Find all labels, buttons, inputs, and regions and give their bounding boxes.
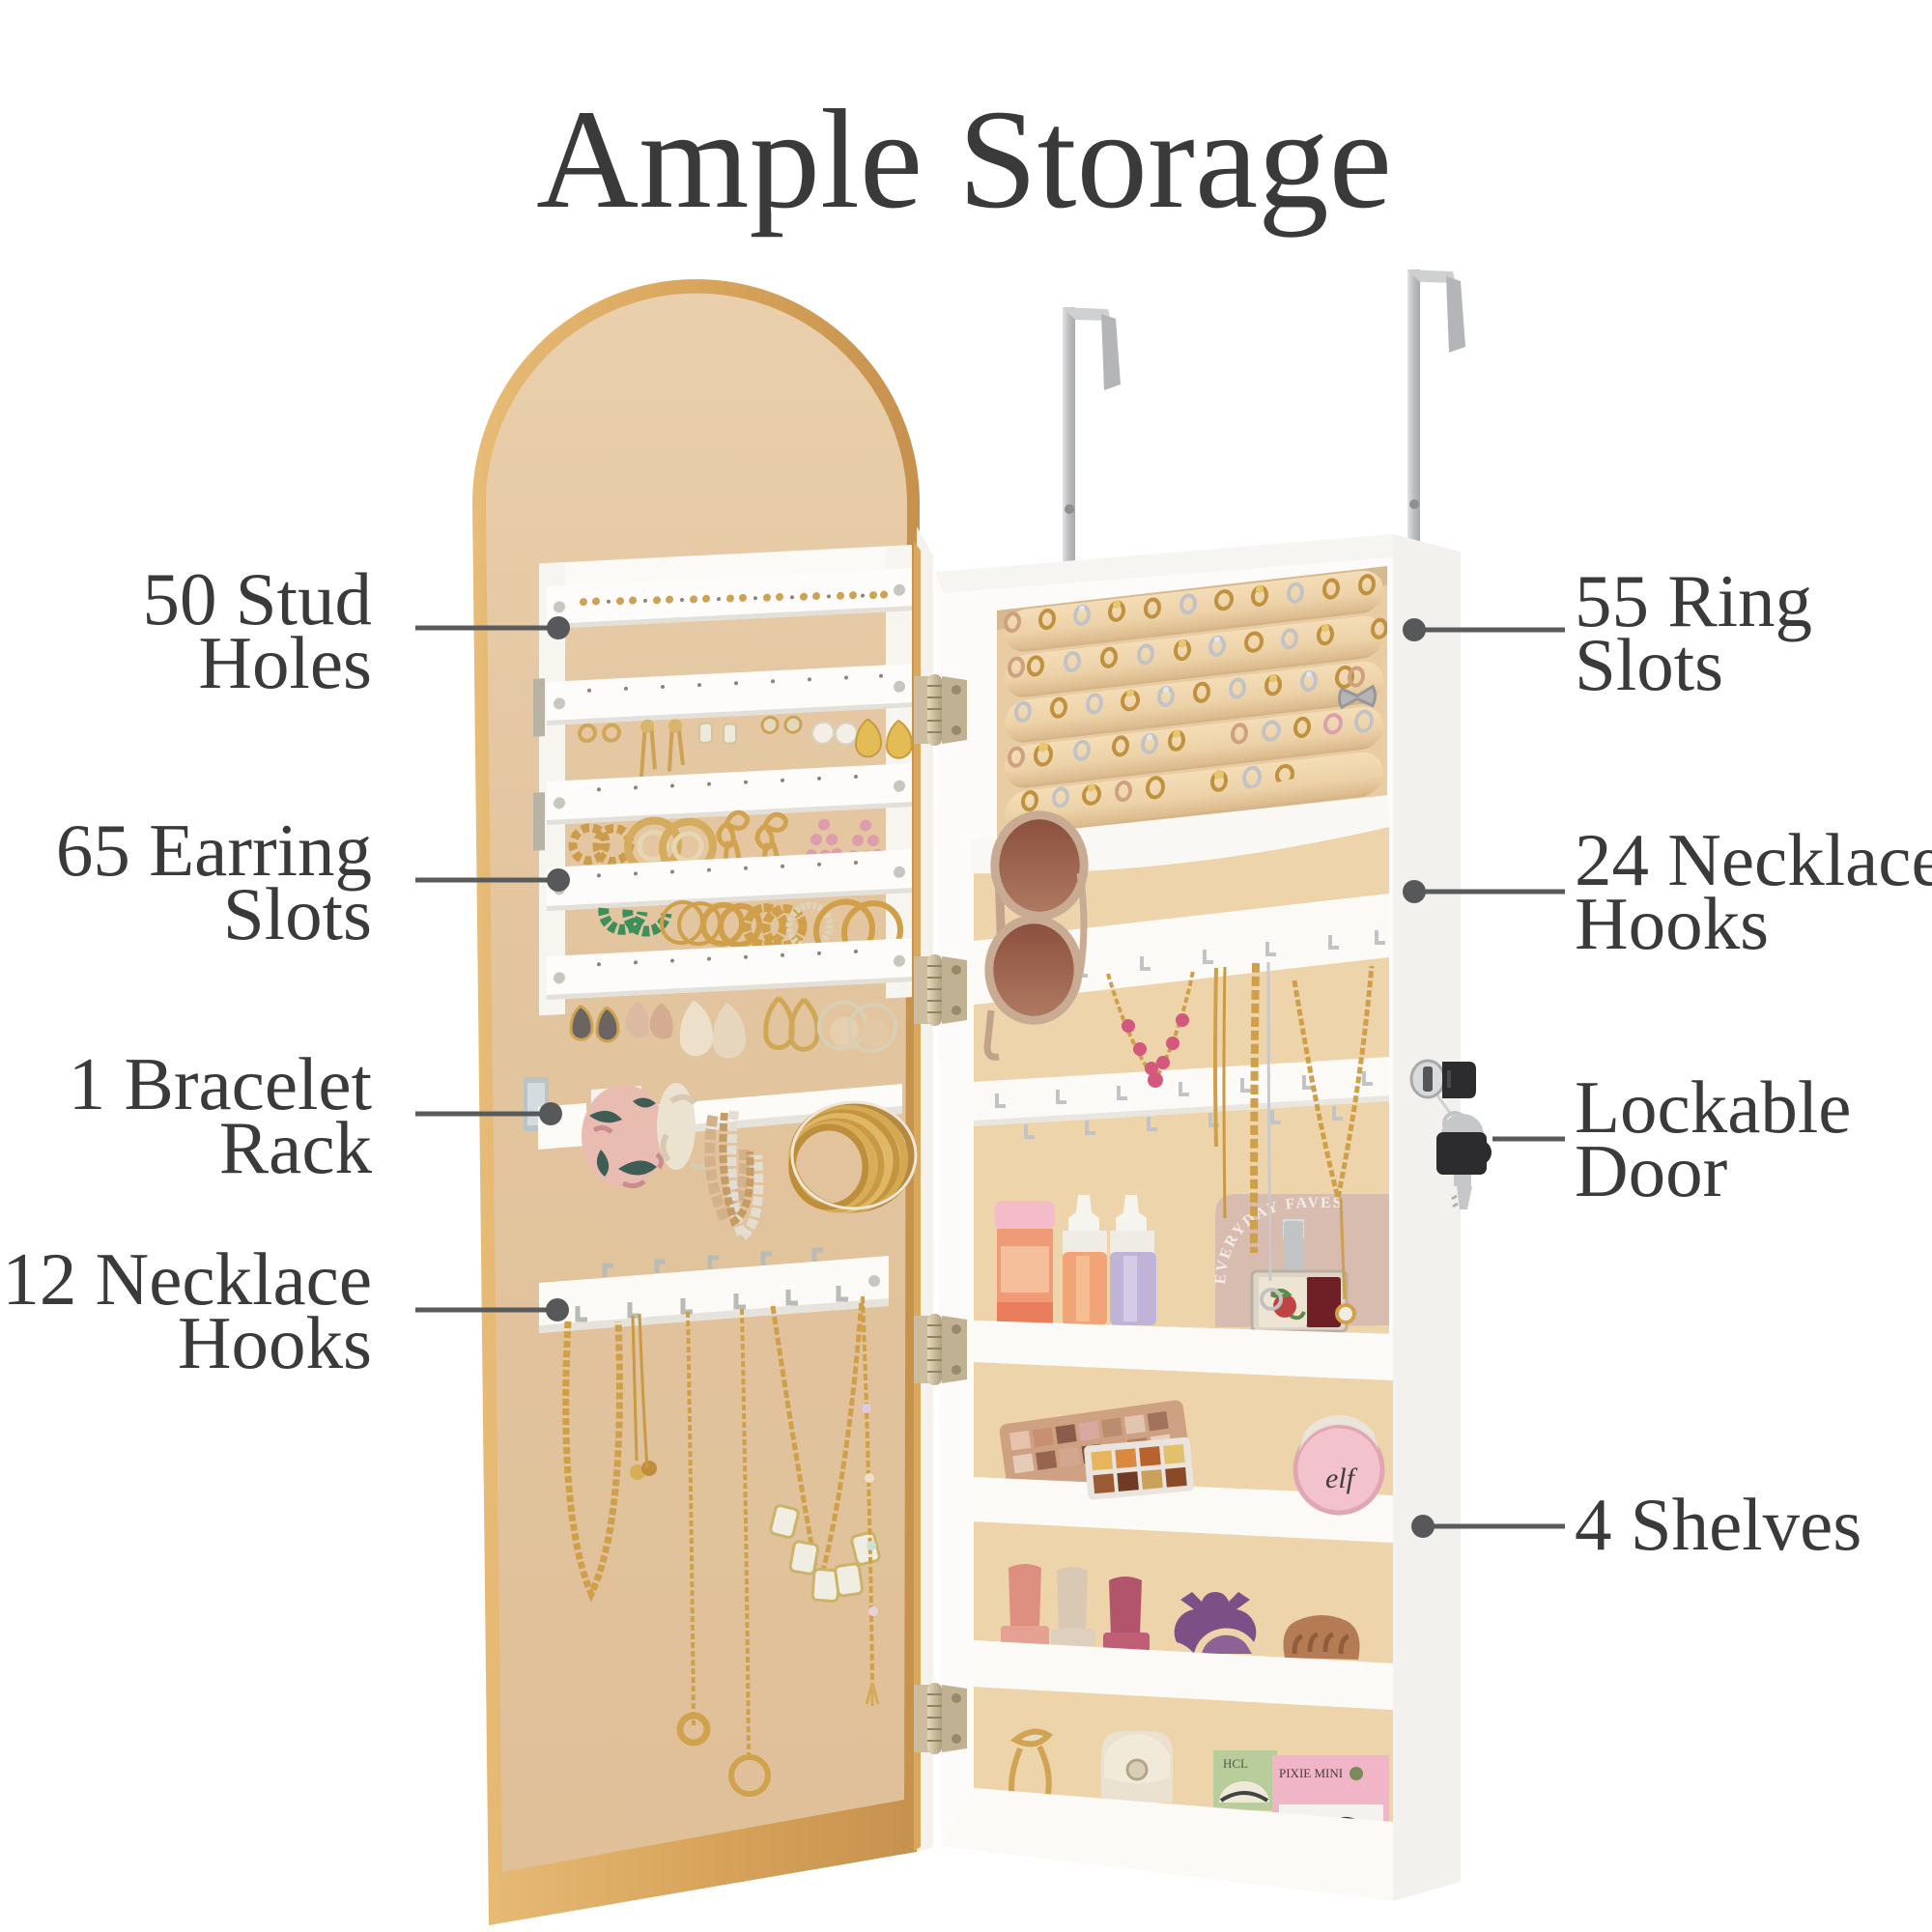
svg-text:4 Shelves: 4 Shelves bbox=[1575, 1483, 1861, 1566]
svg-text:HCL: HCL bbox=[1223, 1756, 1248, 1771]
svg-text:Hooks: Hooks bbox=[178, 1301, 372, 1384]
svg-text:elf: elf bbox=[1325, 1463, 1358, 1494]
svg-text:Holes: Holes bbox=[198, 621, 372, 704]
svg-text:Door: Door bbox=[1575, 1129, 1727, 1212]
svg-text:Slots: Slots bbox=[223, 872, 372, 955]
svg-text:Hooks: Hooks bbox=[1575, 882, 1769, 965]
svg-text:Slots: Slots bbox=[1575, 623, 1723, 706]
svg-text:PIXIE MINI: PIXIE MINI bbox=[1279, 1766, 1343, 1780]
svg-text:Rack: Rack bbox=[219, 1106, 373, 1189]
svg-text:Ample Storage: Ample Storage bbox=[536, 80, 1392, 238]
